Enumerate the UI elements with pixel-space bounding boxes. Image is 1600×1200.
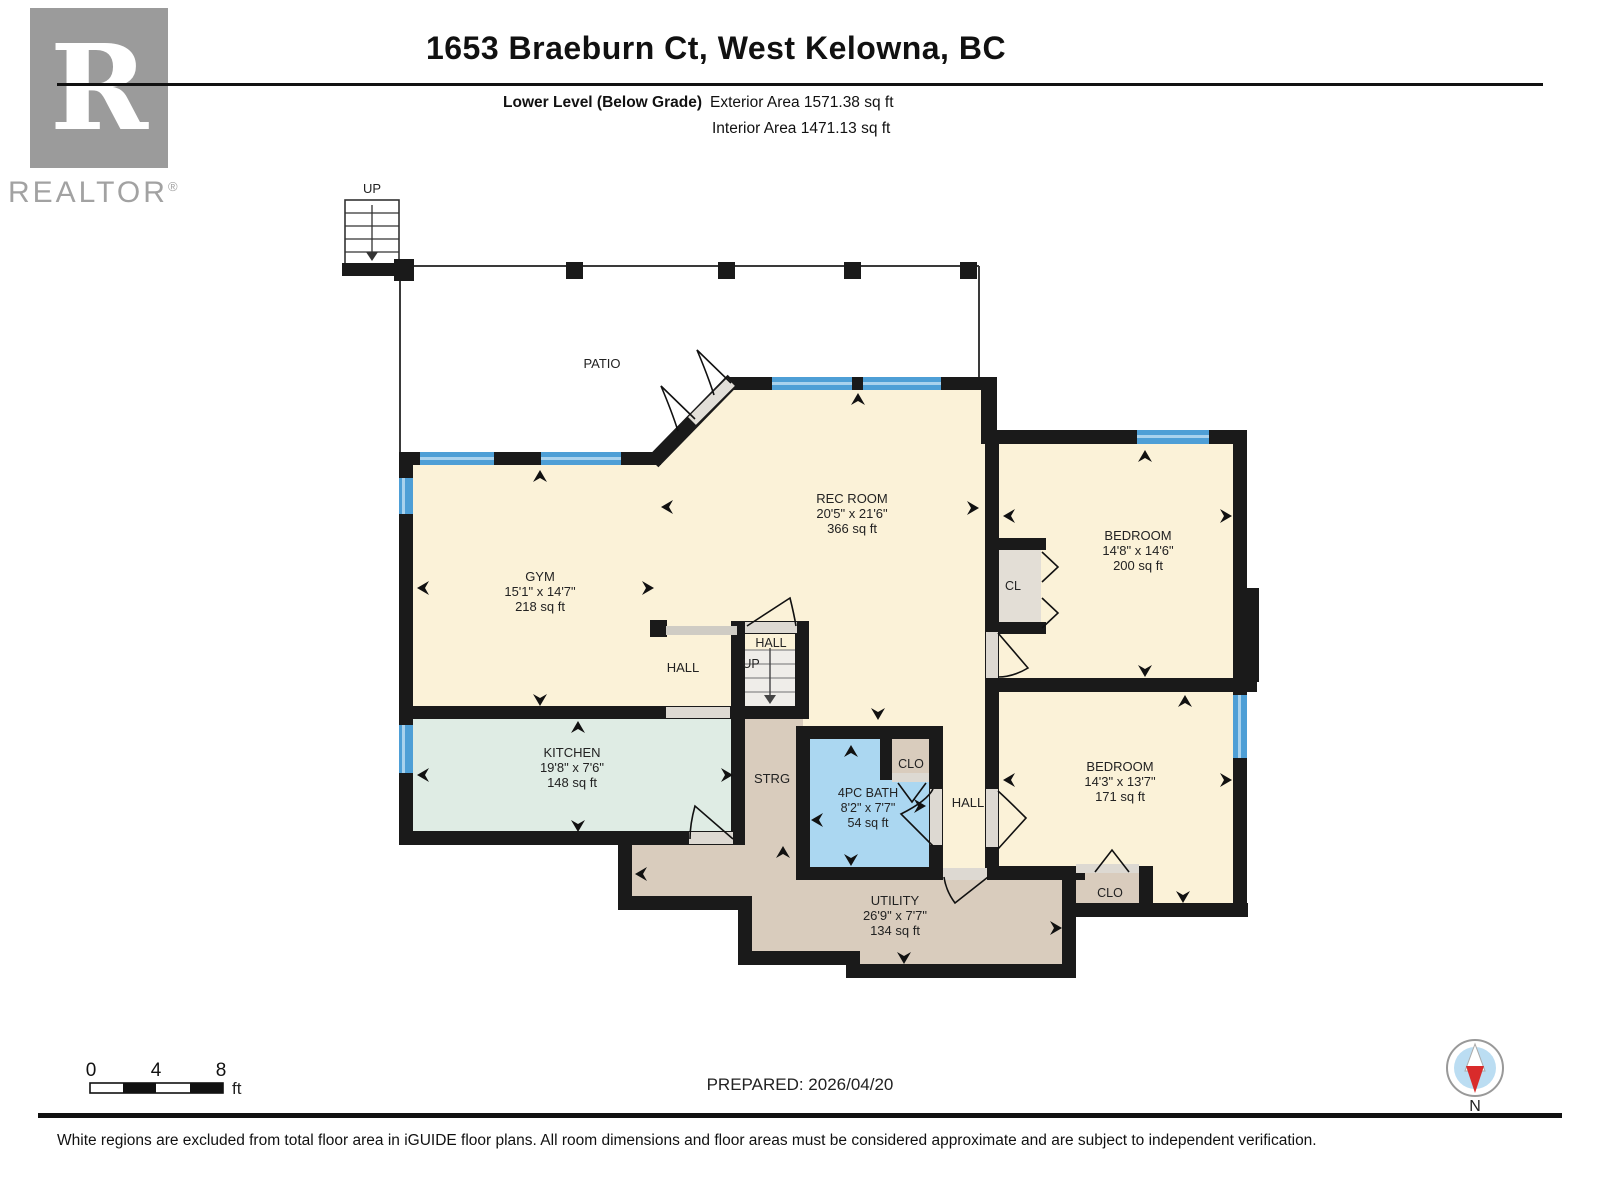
footer-divider (38, 1113, 1562, 1118)
up-label-mid: UP (742, 657, 759, 671)
kitchen-name: KITCHEN (543, 745, 600, 760)
room-fills (406, 383, 1240, 970)
scale-0: 0 (86, 1060, 97, 1081)
gym-name: GYM (525, 569, 555, 584)
bath-dims: 8'2" x 7'7" (841, 801, 896, 815)
bedroom2-name: BEDROOM (1086, 759, 1153, 774)
prepared-date: PREPARED: 2026/04/20 (707, 1075, 894, 1094)
bath-closet-label: CLO (898, 757, 924, 771)
floor-plan-canvas: PATIO UP GYM 15'1" x 14'7" 218 sq ft REC… (0, 0, 1600, 1200)
gym-area: 218 sq ft (515, 599, 565, 614)
scale-8: 8 (216, 1060, 227, 1081)
hall-label-stairs: HALL (755, 636, 786, 650)
bedroom1-dims: 14'8" x 14'6" (1102, 543, 1174, 558)
cl-label: CL (1005, 579, 1021, 593)
bedroom2-dims: 14'3" x 13'7" (1084, 774, 1156, 789)
rec-area: 366 sq ft (827, 521, 877, 536)
kitchen-area: 148 sq ft (547, 775, 597, 790)
utility-name: UTILITY (871, 893, 920, 908)
rec-dims: 20'5" x 21'6" (816, 506, 888, 521)
storage-label: STRG (754, 771, 790, 786)
kitchen-dims: 19'8" x 7'6" (540, 760, 604, 775)
compass: N (1447, 1040, 1503, 1115)
bedroom1-area: 200 sq ft (1113, 558, 1163, 573)
hall-label-main: HALL (667, 660, 700, 675)
bath-area: 54 sq ft (848, 816, 890, 830)
up-label-patio: UP (363, 181, 381, 196)
footer-disclaimer: White regions are excluded from total fl… (57, 1132, 1537, 1150)
scale-bar: 0 4 8 ft (86, 1060, 242, 1098)
patio-label: PATIO (583, 356, 620, 371)
rec-name: REC ROOM (816, 491, 888, 506)
scale-unit: ft (232, 1079, 242, 1098)
bath-name: 4PC BATH (838, 786, 898, 800)
bedroom1-name: BEDROOM (1104, 528, 1171, 543)
utility-dims: 26'9" x 7'7" (863, 908, 927, 923)
utility-area: 134 sq ft (870, 923, 920, 938)
patio-posts (566, 262, 977, 279)
hall-label-bed: HALL (952, 795, 985, 810)
bedroom2-closet-label: CLO (1097, 886, 1123, 900)
floor-plan-page: R REALTOR® 1653 Braeburn Ct, West Kelown… (0, 0, 1600, 1200)
railing (666, 626, 737, 635)
exterior-stairs (345, 200, 399, 266)
bedroom2-area: 171 sq ft (1095, 789, 1145, 804)
scale-4: 4 (151, 1060, 162, 1081)
gym-dims: 15'1" x 14'7" (504, 584, 576, 599)
